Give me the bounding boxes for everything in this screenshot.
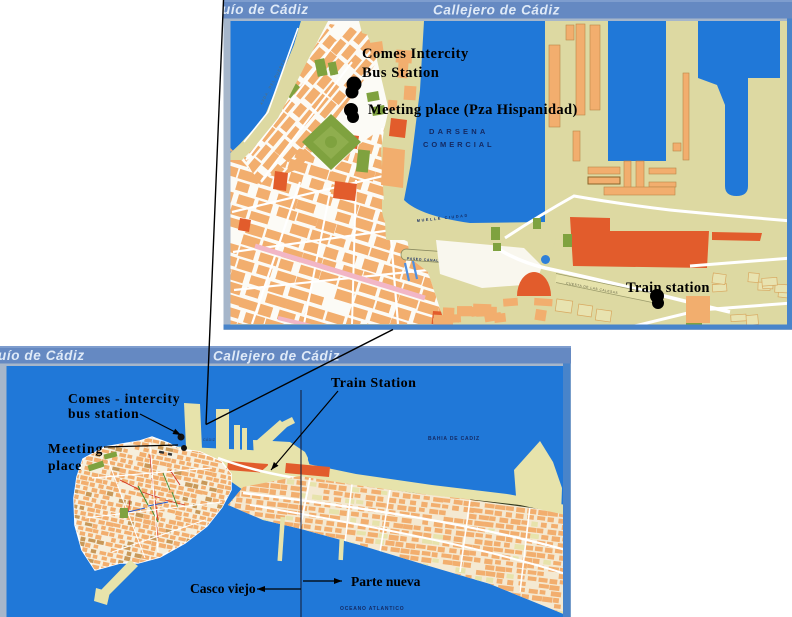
svg-text:uío de Cádiz: uío de Cádiz — [222, 2, 309, 17]
svg-text:Comes - intercity: Comes - intercity — [68, 391, 180, 406]
svg-text:Casco viejo: Casco viejo — [190, 581, 256, 596]
svg-text:BAHIA DE CADIZ: BAHIA DE CADIZ — [428, 436, 480, 442]
svg-text:Train Station: Train Station — [331, 376, 416, 391]
svg-text:DARSENA: DARSENA — [429, 127, 489, 136]
svg-text:OCEANO ATLANTICO: OCEANO ATLANTICO — [340, 606, 404, 612]
svg-text:Parte nueva: Parte nueva — [351, 574, 421, 589]
svg-text:bus station: bus station — [68, 406, 139, 421]
svg-text:Comes Intercity: Comes Intercity — [362, 46, 469, 62]
svg-text:uío de Cádiz: uío de Cádiz — [0, 348, 85, 363]
svg-text:Bus Station: Bus Station — [362, 65, 439, 81]
svg-text:COMERCIAL: COMERCIAL — [423, 140, 495, 149]
svg-text:place: place — [48, 458, 82, 473]
svg-text:Callejero de Cádiz: Callejero de Cádiz — [213, 349, 340, 364]
svg-text:Meeting: Meeting — [48, 441, 104, 456]
svg-text:Callejero de Cádiz: Callejero de Cádiz — [433, 3, 560, 18]
svg-text:CÁDIZ: CÁDIZ — [203, 438, 216, 442]
svg-text:Meeting place (Pza Hispanidad): Meeting place (Pza Hispanidad) — [368, 102, 578, 118]
svg-text:Train station: Train station — [626, 280, 710, 296]
